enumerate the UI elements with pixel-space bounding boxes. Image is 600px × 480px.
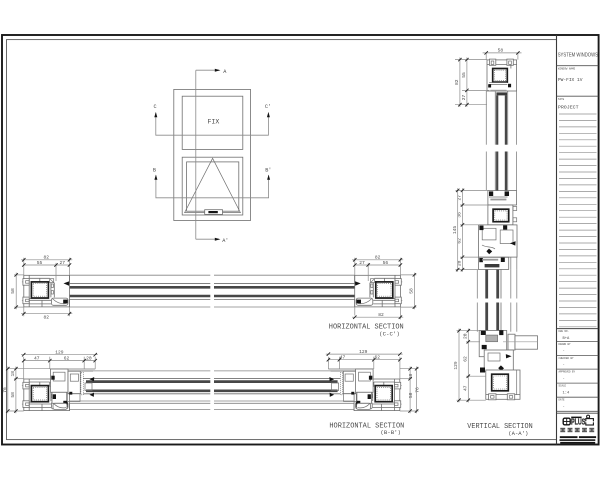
svg-text:55: 55 [461,72,467,78]
svg-text:-: - [563,377,565,381]
svg-text:(C-C'): (C-C') [379,330,400,337]
svg-text:76: 76 [2,387,8,393]
svg-text:-: - [563,364,565,368]
svg-text:DWG NO.: DWG NO. [559,330,570,333]
svg-text:DATE: DATE [559,399,566,402]
svg-text:58: 58 [408,392,414,398]
svg-text:27: 27 [461,95,467,101]
svg-text:62: 62 [462,356,468,362]
svg-text:82: 82 [378,312,384,318]
svg-text:47: 47 [462,385,468,391]
svg-text:82: 82 [44,255,50,261]
svg-text:58: 58 [408,288,414,294]
svg-text:(B-B'): (B-B') [380,429,401,436]
svg-text:47: 47 [340,355,346,361]
svg-text:(A-A'): (A-A') [508,430,528,437]
svg-text:55: 55 [37,260,43,266]
svg-text:PW-FIX 1V: PW-FIX 1V [558,77,583,83]
svg-text:82: 82 [375,255,381,261]
svg-text:20: 20 [86,356,92,362]
svg-text:47: 47 [34,356,40,362]
svg-text:129: 129 [55,350,64,356]
svg-text:18: 18 [408,374,414,380]
svg-text:SITE: SITE [558,98,565,101]
svg-text:DRAWN BY: DRAWN BY [559,343,572,346]
svg-text:82: 82 [454,79,460,85]
svg-text:27: 27 [59,260,65,266]
svg-text:C: C [153,104,156,110]
svg-text:20: 20 [462,333,468,339]
svg-text:18: 18 [10,371,16,377]
svg-text:B: B [153,168,156,174]
svg-text:82: 82 [44,314,50,320]
svg-text:76: 76 [415,387,421,393]
svg-text:APPROVED BY: APPROVED BY [559,371,576,374]
svg-text:27: 27 [359,260,365,266]
svg-text:B': B' [265,168,271,174]
svg-text:145: 145 [452,226,458,235]
svg-text:58: 58 [498,48,504,54]
svg-text:PROJECT: PROJECT [558,104,579,110]
svg-text:SYSTEM WINDOWS: SYSTEM WINDOWS [558,52,599,58]
svg-text:129: 129 [453,361,459,370]
svg-text:C': C' [265,104,271,110]
svg-text:129: 129 [359,349,368,355]
svg-text:-: - [563,350,565,354]
svg-text:CHECKED BY: CHECKED BY [559,357,575,360]
svg-text:PLUS: PLUS [571,418,586,427]
svg-text:-: - [563,405,565,409]
svg-text:62: 62 [64,356,70,362]
svg-text:1:4: 1:4 [563,391,571,395]
svg-text:WINDOW NAME: WINDOW NAME [558,67,576,70]
svg-text:A': A' [222,238,228,244]
svg-text:SCALE: SCALE [559,385,567,388]
svg-text:B+A: B+A [563,337,571,341]
svg-text:58: 58 [10,392,16,398]
svg-text:62: 62 [374,355,380,361]
svg-text:56: 56 [383,260,389,266]
svg-text:58: 58 [10,288,16,294]
svg-text:FIX: FIX [207,118,219,126]
